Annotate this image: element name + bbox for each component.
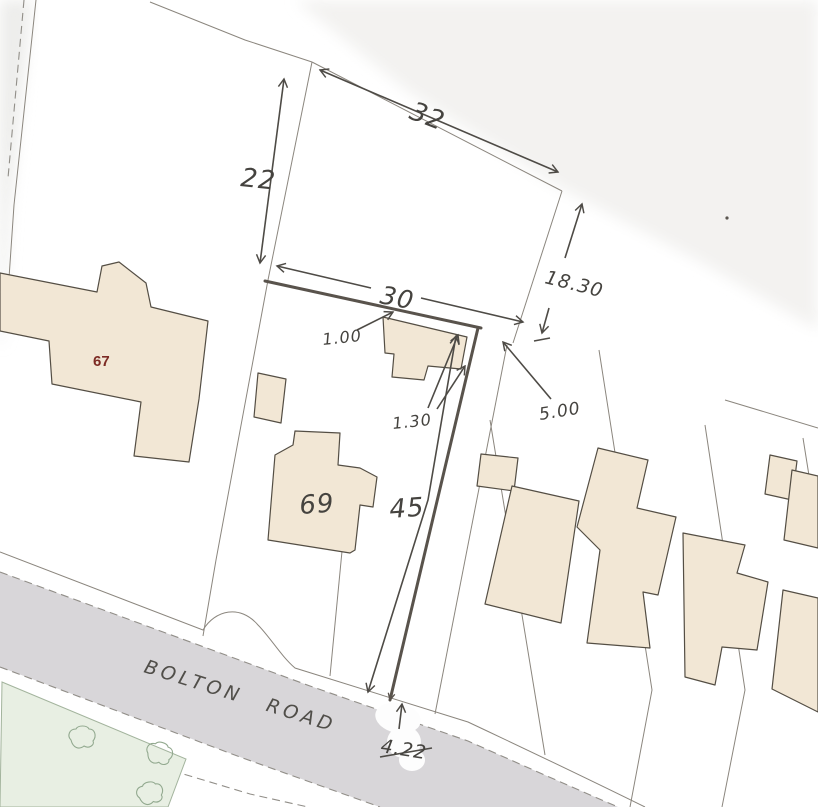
dim-30-arrow-left [277,266,371,288]
dim-1830-label: 18.30 [543,267,606,303]
dim-1830-end-tick [534,338,550,341]
dim-30-label: 30 [378,280,417,315]
dim-500-label: 5.00 [538,399,582,425]
building-right-2 [577,448,676,648]
dimension-labels: 32 22 30 18.30 1.00 1.30 5.00 45 4.22 [239,97,605,765]
building-right-1-main [485,486,579,623]
shed-building [254,373,286,423]
house-69-label: 69 [298,489,335,521]
building-right-3 [683,533,768,685]
building-right-5 [772,590,818,712]
dim-130-label: 1.30 [391,410,432,433]
scan-speck [725,216,728,219]
dim-22-label: 22 [239,163,277,197]
dim-100-label: 1.00 [321,326,362,349]
scanned-site-plan: 32 22 30 18.30 1.00 1.30 5.00 45 4.22 67… [0,0,818,807]
leader-500-arrow [503,342,551,399]
dim-45-label: 45 [388,493,425,525]
dim-1830-arrow-up [565,204,582,258]
site-plan-canvas: 32 22 30 18.30 1.00 1.30 5.00 45 4.22 67… [0,0,818,807]
house-67-label: 67 [93,353,110,370]
dim-1830-arrow-down [542,308,549,333]
